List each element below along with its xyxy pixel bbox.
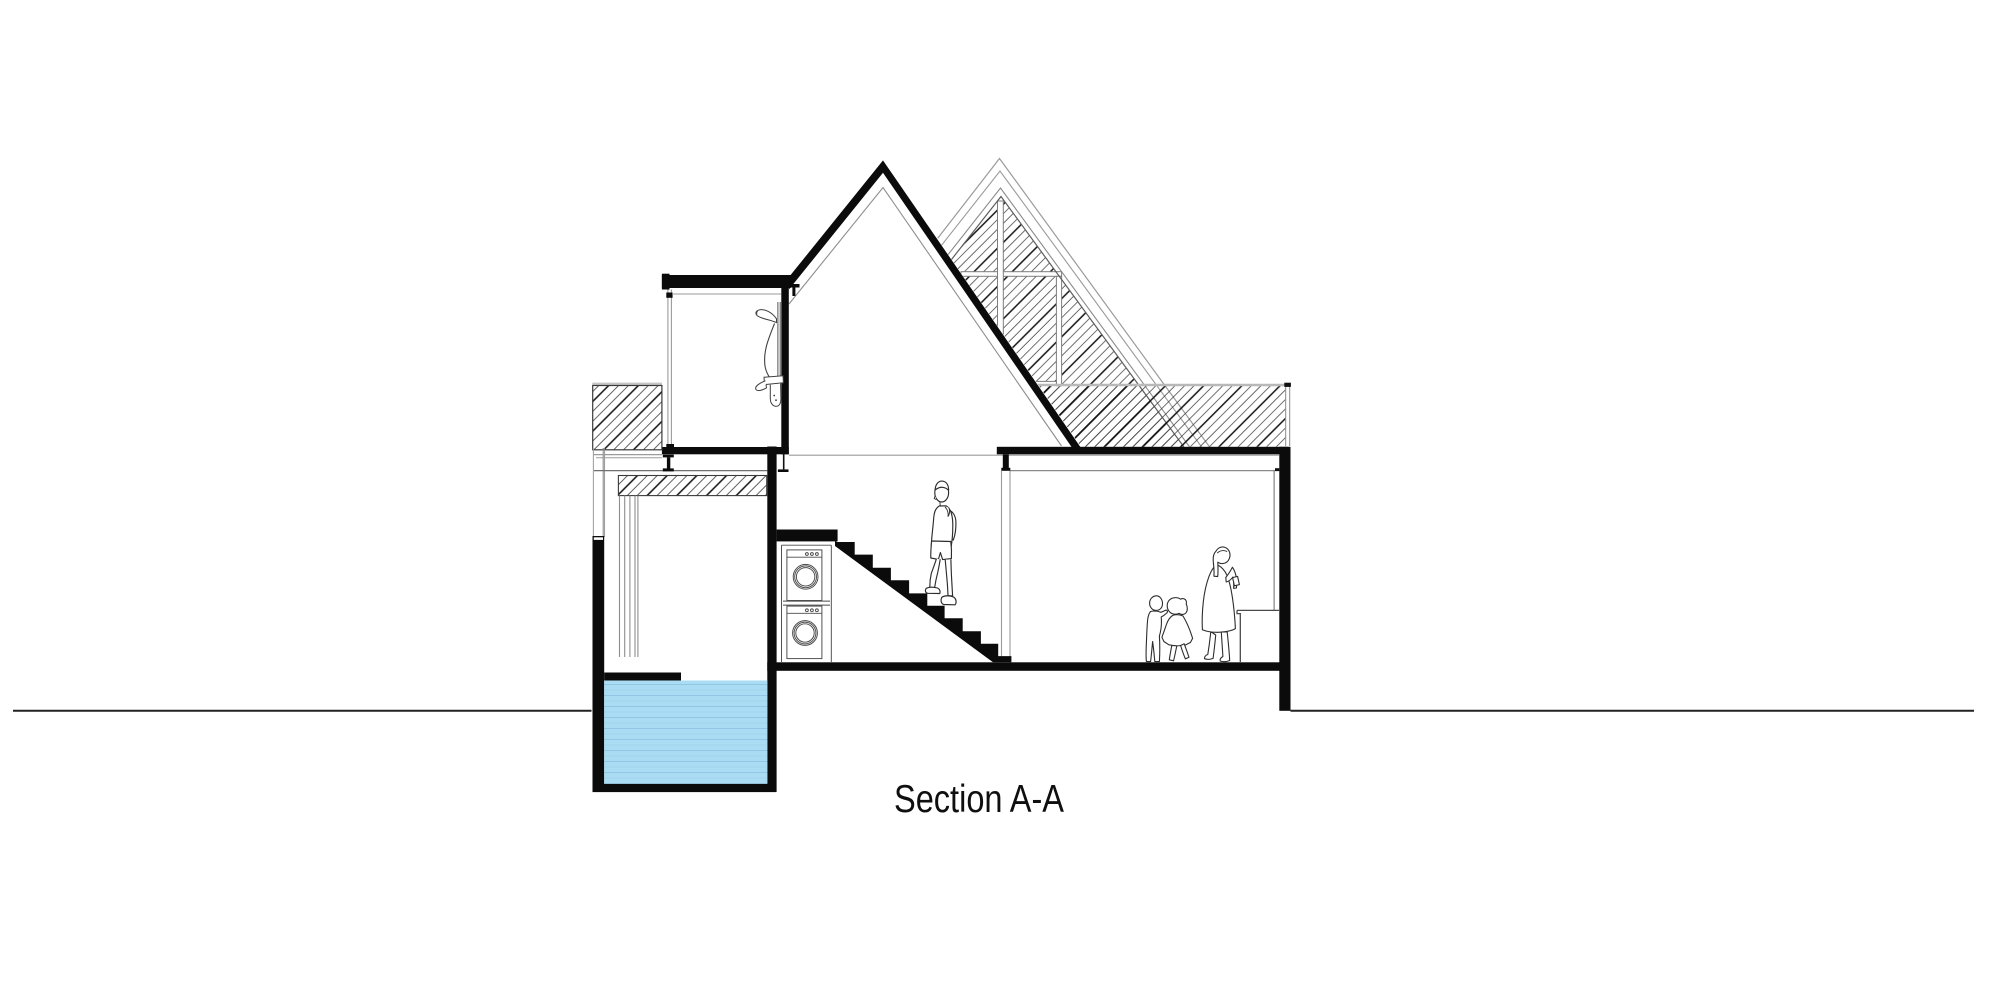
svg-text:Section A-A: Section A-A	[894, 778, 1064, 821]
